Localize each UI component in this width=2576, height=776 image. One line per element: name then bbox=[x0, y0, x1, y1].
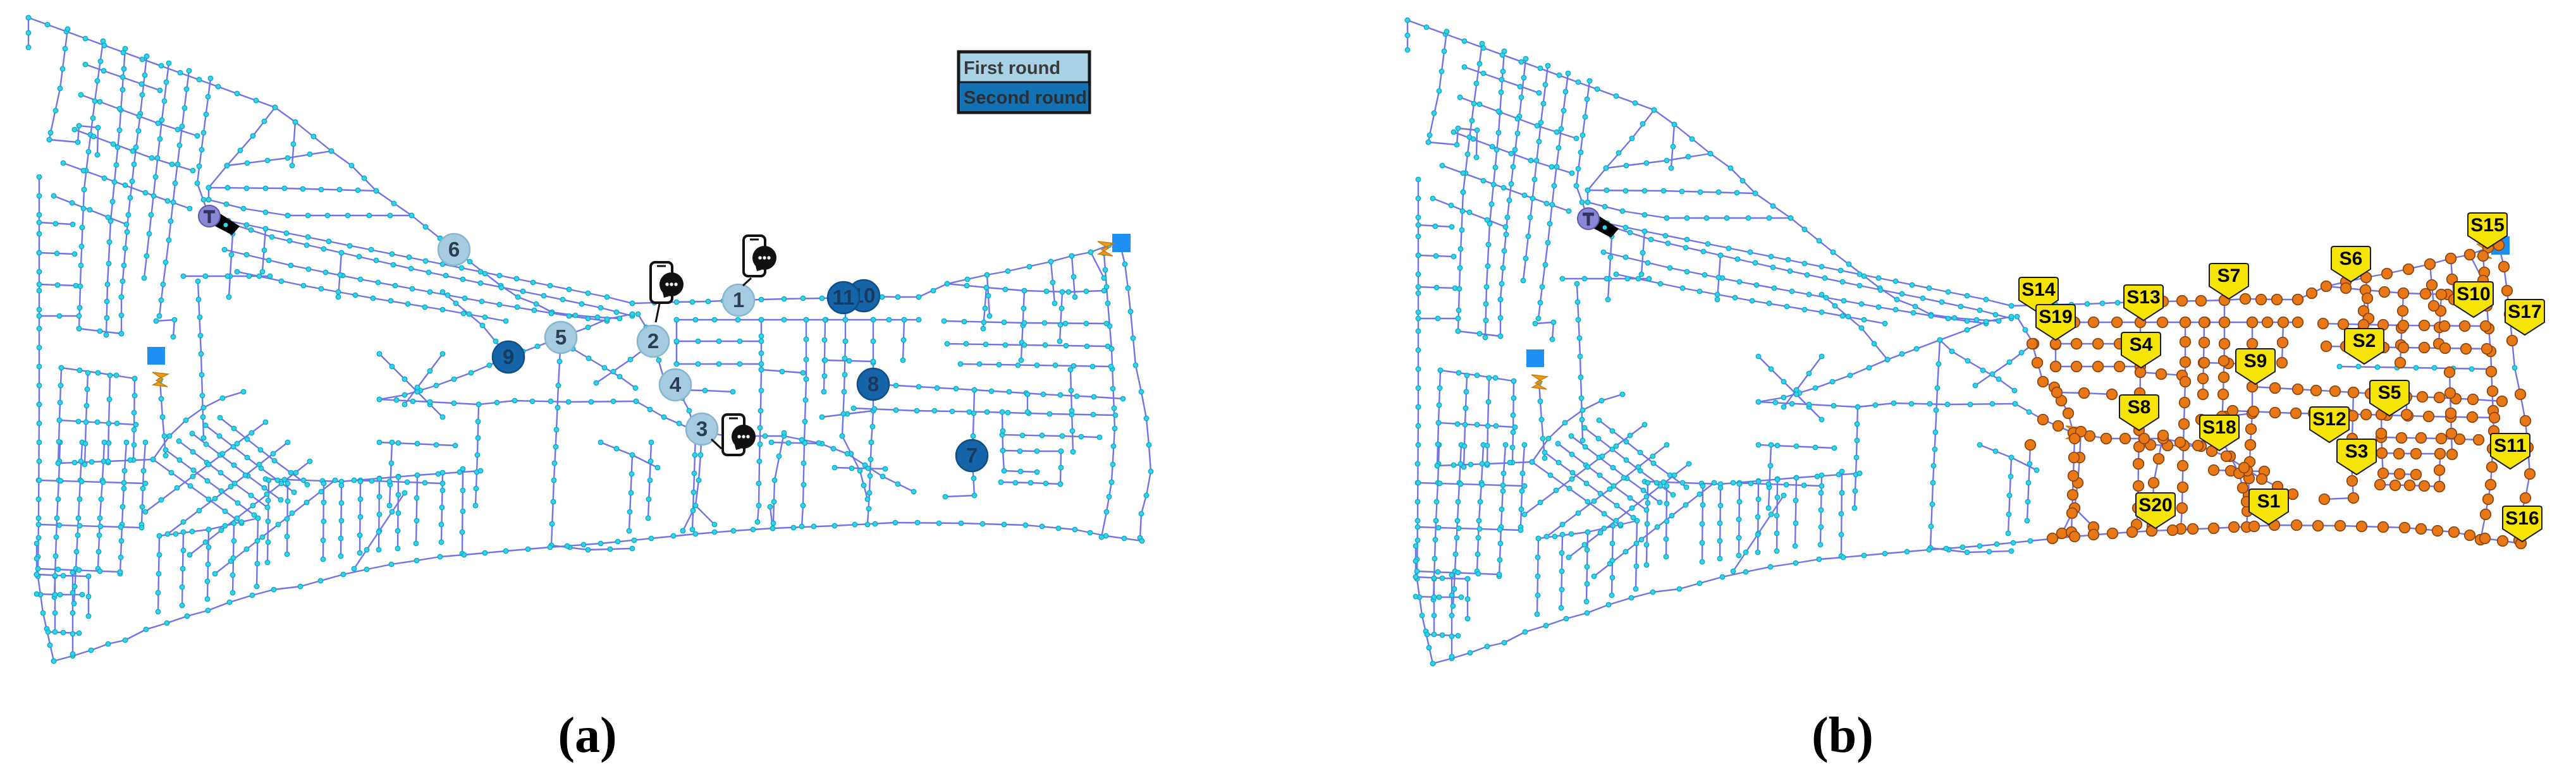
svg-text:S18: S18 bbox=[2202, 417, 2236, 438]
svg-text:4: 4 bbox=[670, 373, 682, 396]
svg-text:5: 5 bbox=[555, 325, 567, 349]
svg-text:3: 3 bbox=[696, 417, 708, 440]
svg-text:1: 1 bbox=[733, 288, 744, 312]
svg-text:S1: S1 bbox=[2257, 491, 2281, 512]
svg-text:S3: S3 bbox=[2345, 441, 2369, 462]
svg-text:S9: S9 bbox=[2244, 351, 2267, 372]
svg-text:9: 9 bbox=[503, 345, 514, 368]
svg-text:S6: S6 bbox=[2340, 248, 2363, 269]
svg-text:S12: S12 bbox=[2312, 409, 2346, 430]
svg-text:7: 7 bbox=[966, 444, 978, 467]
svg-text:(a): (a) bbox=[558, 708, 616, 763]
svg-text:First round: First round bbox=[964, 58, 1060, 78]
svg-text:S8: S8 bbox=[2128, 397, 2151, 418]
svg-text:8: 8 bbox=[868, 372, 879, 396]
svg-text:S20: S20 bbox=[2138, 495, 2172, 516]
svg-text:11: 11 bbox=[833, 286, 855, 309]
svg-text:S19: S19 bbox=[2039, 306, 2072, 327]
svg-text:(b): (b) bbox=[1812, 708, 1874, 763]
svg-text:S5: S5 bbox=[2378, 382, 2401, 403]
svg-text:S14: S14 bbox=[2021, 279, 2056, 300]
svg-text:S13: S13 bbox=[2126, 287, 2160, 308]
svg-text:6: 6 bbox=[448, 238, 460, 261]
svg-text:S16: S16 bbox=[2505, 508, 2539, 529]
svg-text:S15: S15 bbox=[2470, 215, 2504, 236]
svg-text:S7: S7 bbox=[2217, 265, 2241, 286]
svg-text:S2: S2 bbox=[2353, 330, 2376, 351]
svg-text:S10: S10 bbox=[2456, 284, 2490, 305]
svg-text:S17: S17 bbox=[2508, 301, 2541, 322]
svg-text:Second round: Second round bbox=[964, 88, 1087, 108]
svg-text:2: 2 bbox=[647, 329, 659, 353]
svg-text:S4: S4 bbox=[2130, 334, 2153, 355]
svg-text:S11: S11 bbox=[2494, 435, 2527, 456]
